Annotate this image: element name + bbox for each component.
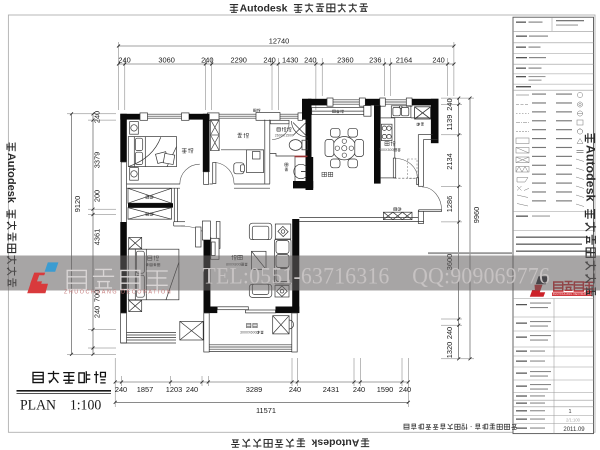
svg-text:1203: 1203 — [166, 385, 182, 394]
svg-text:2290: 2290 — [230, 55, 246, 64]
svg-text:2011.09: 2011.09 — [563, 427, 585, 433]
svg-text:240: 240 — [353, 385, 365, 394]
svg-text:ZHUOCHUANG DECORATION: ZHUOCHUANG DECORATION — [64, 290, 172, 296]
svg-text:4361: 4361 — [93, 229, 102, 245]
svg-text:12740: 12740 — [269, 37, 290, 46]
svg-text:2134: 2134 — [445, 153, 454, 169]
svg-text:Autodesk: Autodesk — [311, 437, 359, 449]
svg-text:Autodesk: Autodesk — [583, 145, 597, 202]
svg-text:9120: 9120 — [73, 196, 82, 212]
svg-text:240: 240 — [445, 98, 454, 110]
svg-text:9960: 9960 — [472, 207, 481, 223]
svg-text:Autodesk: Autodesk — [5, 153, 17, 204]
svg-text:11571: 11571 — [256, 406, 276, 415]
svg-text:240: 240 — [399, 385, 411, 394]
svg-text:1430: 1430 — [282, 55, 298, 64]
svg-text:240: 240 — [118, 55, 130, 64]
svg-text:2164: 2164 — [396, 55, 412, 64]
svg-text:1286: 1286 — [445, 196, 454, 212]
svg-text:240: 240 — [93, 306, 102, 318]
svg-text:236: 236 — [369, 55, 381, 64]
svg-text:1139: 1139 — [445, 115, 454, 131]
svg-text:3000X600: 3000X600 — [240, 331, 256, 335]
svg-text:1857: 1857 — [137, 385, 153, 394]
svg-text:1: 1 — [568, 409, 571, 415]
svg-text:2360: 2360 — [337, 55, 353, 64]
svg-text:240: 240 — [186, 385, 198, 394]
svg-text:2600X1500: 2600X1500 — [275, 134, 293, 138]
svg-text:1590: 1590 — [377, 385, 393, 394]
svg-text:240: 240 — [93, 111, 102, 123]
svg-text:3289: 3289 — [246, 385, 262, 394]
svg-text:240: 240 — [263, 55, 275, 64]
svg-text:TEL:0551-63716316 QQ:909069: TEL:0551-63716316 QQ:909069776 — [203, 263, 551, 289]
svg-text:2431: 2431 — [323, 385, 339, 394]
svg-text:PLAN 1:100: PLAN 1:100 — [20, 397, 101, 414]
svg-text:240: 240 — [289, 385, 301, 394]
svg-text:240: 240 — [115, 385, 127, 394]
svg-text:3060: 3060 — [158, 55, 174, 64]
svg-text:240: 240 — [432, 55, 444, 64]
svg-text:3379: 3379 — [93, 152, 102, 168]
svg-text:2/1:100: 2/1:100 — [566, 418, 581, 423]
svg-text:240: 240 — [445, 327, 454, 339]
svg-text:240: 240 — [304, 55, 316, 64]
svg-text:200: 200 — [93, 190, 102, 202]
svg-text:240: 240 — [201, 55, 213, 64]
svg-text:Autodesk: Autodesk — [240, 3, 288, 15]
svg-text:1320: 1320 — [445, 342, 454, 358]
svg-text:300X300: 300X300 — [379, 148, 393, 152]
